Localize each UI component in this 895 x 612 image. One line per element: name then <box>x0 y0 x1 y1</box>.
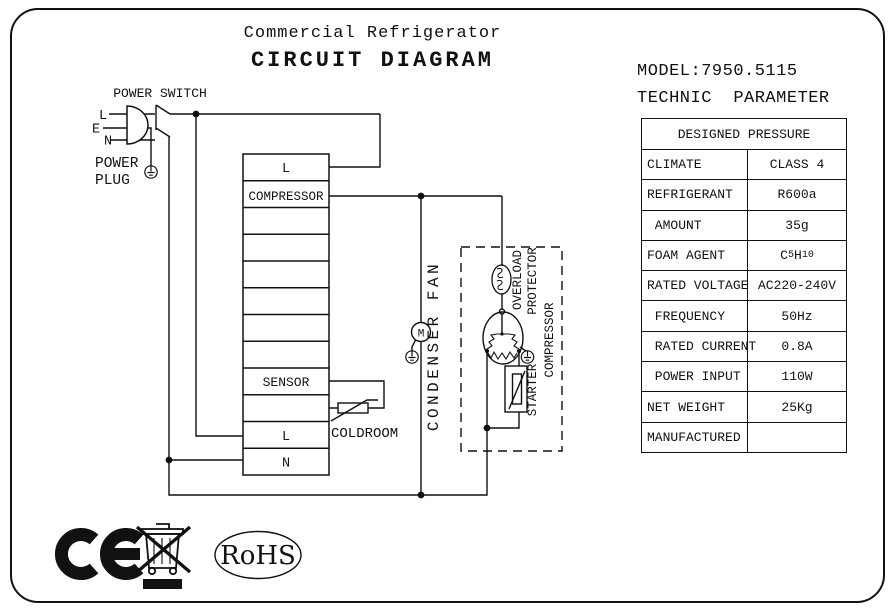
ce-mark-icon <box>61 535 140 574</box>
terminal-label: L <box>282 162 290 177</box>
power-switch <box>156 105 170 137</box>
thermistor-icon <box>331 400 378 421</box>
pin-l-label: L <box>99 109 107 124</box>
terminal-label: COMPRESSOR <box>248 190 324 204</box>
certification-marks: RoHS <box>40 515 320 605</box>
power-switch-label: POWER SWITCH <box>113 86 207 101</box>
ground-icon <box>521 351 533 363</box>
compressor-motor-icon <box>483 309 523 364</box>
power-plug-label-1: POWER <box>95 156 139 172</box>
power-plug <box>127 106 148 144</box>
power-plug-label-2: PLUG <box>95 173 130 189</box>
pin-n-label: N <box>104 135 112 150</box>
weee-bin-icon <box>137 524 190 589</box>
terminal-label: L <box>282 430 290 445</box>
ptc-starter-icon <box>505 366 527 412</box>
overload-label-1: OVERLOAD <box>511 250 525 310</box>
wires <box>103 114 526 495</box>
compressor-label: COMPRESSOR <box>543 302 557 378</box>
ground-icon <box>145 166 157 178</box>
terminal-label: N <box>282 457 290 472</box>
ground-icon <box>406 351 418 363</box>
condenser-fan-label: CONDENSER FAN <box>425 261 443 431</box>
pin-e-label: E <box>92 123 100 138</box>
starter-label: STARTER <box>526 363 540 416</box>
motor-letter: M <box>418 329 425 341</box>
rohs-badge-icon: RoHS <box>215 532 301 579</box>
overload-label-2: PROTECTOR <box>526 247 540 315</box>
label-page: Commercial Refrigerator CIRCUIT DIAGRAM … <box>0 0 895 612</box>
coldroom-label: COLDROOM <box>331 426 398 442</box>
rohs-label: RoHS <box>220 541 296 571</box>
terminal-label: SENSOR <box>263 375 310 390</box>
overload-protector-icon <box>492 265 511 294</box>
